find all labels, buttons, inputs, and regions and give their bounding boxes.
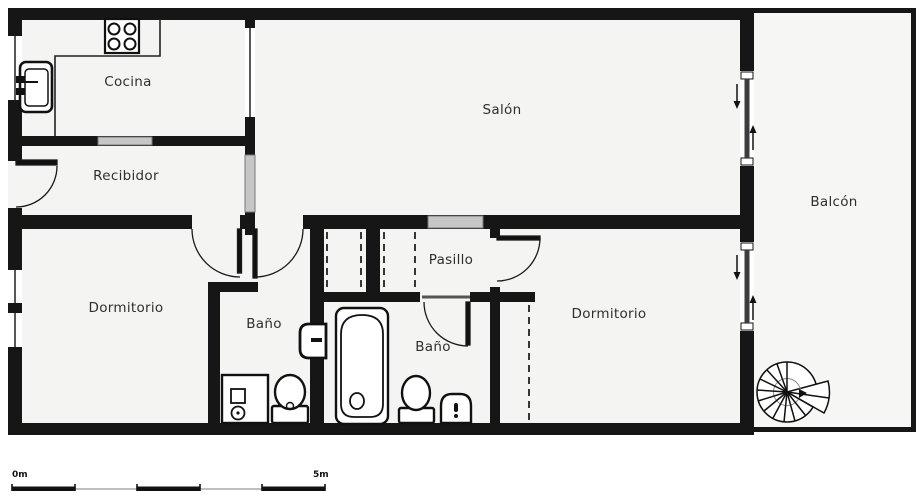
sliding-door-panel-icon <box>745 79 750 158</box>
glass-cocina-recibidor <box>98 137 152 145</box>
wall-row-divider <box>8 215 740 229</box>
door-opening-bano1 <box>255 215 303 229</box>
wall-balcony-bottom <box>754 427 916 432</box>
scale-end-label: 5m <box>313 470 329 480</box>
wall-bano1-left <box>208 292 220 425</box>
wall-balcony-right <box>911 8 916 432</box>
entry-door-opening <box>8 161 22 208</box>
stove-icon <box>105 19 139 53</box>
dormitorio-right-door-leaf <box>497 236 540 240</box>
kitchen-sink-icon <box>16 62 52 112</box>
glass-recibidor-salon <box>245 155 255 212</box>
glass-pasillo-salon <box>428 216 483 228</box>
room-label-recibidor: Recibidor <box>93 168 159 184</box>
entry-door-leaf <box>16 160 57 165</box>
wall-balcony-top <box>754 8 916 13</box>
bano2-door-leaf <box>466 302 470 345</box>
wall-closet-top <box>500 292 535 302</box>
floor-plan: Cocina Recibidor Salón Balcón Dormitorio… <box>0 0 920 499</box>
room-label-cocina: Cocina <box>104 74 152 90</box>
door-opening-dormitorio-left <box>192 215 240 229</box>
scale-start-label: 0m <box>12 470 28 480</box>
room-label-pasillo: Pasillo <box>429 252 473 268</box>
room-label-salon: Salón <box>483 102 522 118</box>
room-label-balcon: Balcón <box>810 194 857 210</box>
room-label-dormitorio-derecho: Dormitorio <box>572 306 647 322</box>
bano1-door-leaf <box>253 229 257 278</box>
door-opening-dormitorio-right <box>490 238 500 287</box>
wall-bano2-top <box>310 292 500 302</box>
scale-bar <box>11 484 326 491</box>
room-label-bano-2: Baño <box>415 339 451 355</box>
wall-bano1-step <box>208 282 258 292</box>
wall-shaft-divider <box>366 229 380 302</box>
dormitorio-left-door-leaf <box>238 229 242 273</box>
room-label-bano-1: Baño <box>246 316 282 332</box>
window-mullion <box>8 303 22 313</box>
room-label-dormitorio-izquierdo: Dormitorio <box>89 300 164 316</box>
sliding-door-panel-icon <box>745 250 750 323</box>
